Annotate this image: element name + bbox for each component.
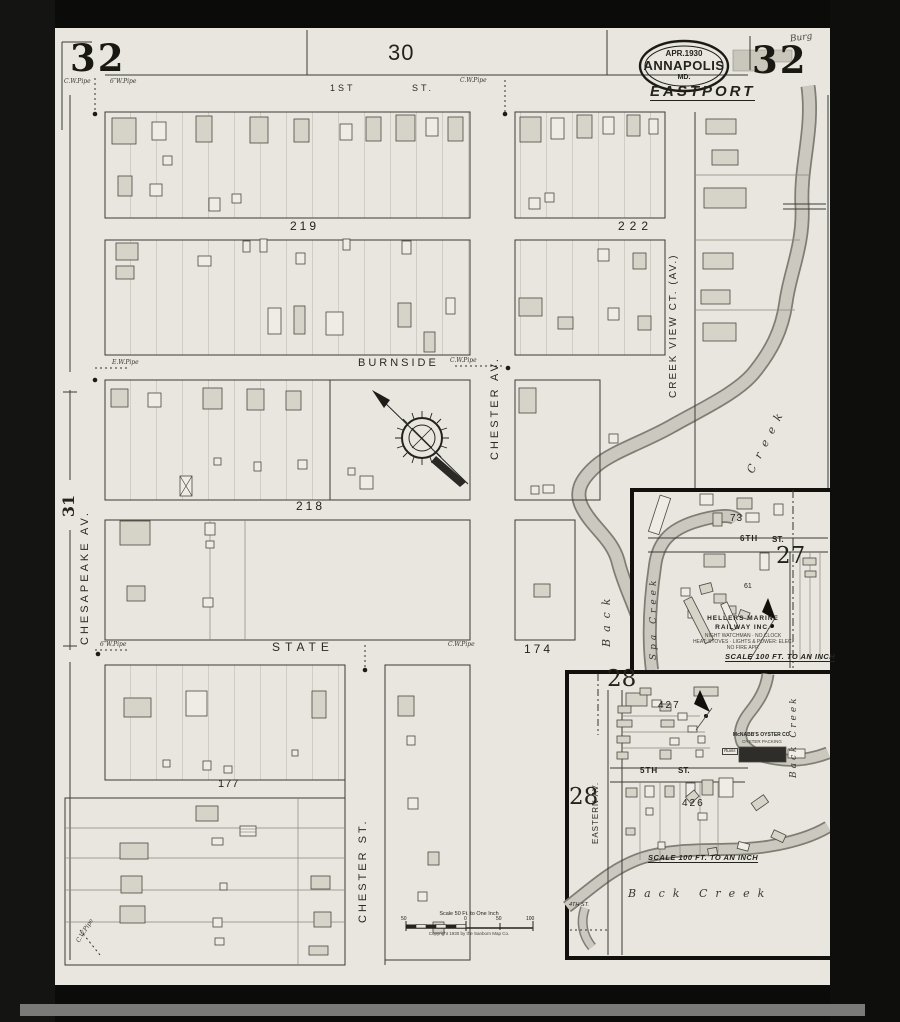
business-name-line1: McNABB'S OYSTER CO. — [733, 733, 791, 738]
street-label-burnside: BURNSIDE — [358, 358, 439, 369]
inset-27-scale-note: SCALE 100 FT. TO AN INCH — [725, 653, 835, 662]
district-label: EASTPORT — [650, 84, 755, 101]
business-name-line2: OYSTER PACKING — [742, 740, 782, 745]
pipe-note: C.W.Pipe — [460, 78, 487, 84]
block-number-427: 427 — [658, 701, 681, 711]
street-label-6th: 6TH — [740, 535, 758, 543]
scale-tick: 50 — [496, 917, 502, 922]
pipe-note: C.W.Pipe — [448, 642, 475, 648]
street-label-creek-view-ct: CREEK VIEW CT. (AV.) — [669, 180, 679, 398]
water-label-back-creek-bottom: Back Creek — [628, 888, 772, 899]
block-number-426: 426 — [682, 799, 705, 809]
block-number-219: 219 — [290, 220, 319, 232]
pipe-note: 6″W.Pipe — [100, 642, 126, 648]
inset-28-number-top: 28 — [607, 668, 636, 691]
block-number-218: 218 — [296, 500, 325, 512]
ruins-label: Ruins — [722, 748, 738, 755]
water-label-spa-creek: Spa Creek — [650, 552, 659, 660]
block-number-177: 177 — [218, 779, 239, 790]
street-label-state: STATE — [272, 641, 334, 653]
street-label-1st-suffix: ST. — [412, 84, 434, 93]
street-label-5th-suffix: ST. — [678, 767, 690, 775]
scale-bar-title: Scale 50 Ft. to One Inch — [439, 912, 498, 918]
pipe-note: C.W.Pipe — [64, 79, 91, 85]
adjacent-sheet-top: 30 — [388, 42, 414, 64]
inset-28-scale-note: SCALE 100 FT. TO AN INCH — [648, 854, 758, 863]
inset-27-number: 27 — [776, 545, 805, 568]
stamp-city: ANNAPOLIS — [643, 59, 724, 72]
pipe-note: E.W.Pipe — [112, 360, 139, 366]
sheet-number-left: 32 — [70, 40, 126, 77]
scanned-map-page: 32 32 30 31 Burg APR.1930 ANNAPOLIS MD. … — [0, 0, 900, 1022]
street-label-chesapeake-av: CHESAPEAKE AV. — [80, 440, 91, 645]
adjacent-sheet-left: 31 — [61, 495, 77, 517]
street-label-chester-av: CHESTER AV. — [490, 312, 501, 460]
map-canvas — [0, 0, 900, 1022]
compass-rose — [372, 390, 468, 487]
block-number-61: 61 — [744, 583, 752, 590]
scale-bar-copyright: Copyright 1930 by the Sanborn Map Co. — [429, 932, 510, 937]
business-fine-print: NO FIRE APP. — [727, 646, 759, 651]
street-label-1st: 1ST — [330, 84, 356, 93]
business-name-line2: RAILWAY INC. — [715, 625, 771, 632]
pipe-note: 6″W.Pipe — [110, 79, 136, 85]
pipe-note: C.W.Pipe — [450, 358, 477, 364]
street-label-chester-st: CHESTER ST. — [358, 745, 369, 923]
scale-tick: 50 — [401, 917, 407, 922]
stamp-date: APR.1930 — [666, 50, 703, 58]
block-number-174: 174 — [524, 643, 553, 655]
sheet-number-right: 32 — [752, 42, 808, 79]
water-label-back: Back — [601, 552, 612, 647]
street-label-6th-suffix: ST. — [772, 536, 784, 544]
street-label-4th: 4TH ST. — [569, 903, 589, 909]
scale-tick: 0 — [464, 917, 467, 922]
block-number-73: 73 — [730, 514, 743, 524]
block-number-222: 222 — [618, 220, 653, 232]
street-label-eastern-av: EASTERN AV. — [592, 744, 600, 844]
business-name-line1: HELLERS MARINE — [707, 616, 779, 623]
water-label-back-creek-side: Back Creek — [790, 682, 799, 778]
scale-tick: 100 — [526, 917, 534, 922]
street-label-5th: 5TH — [640, 767, 658, 775]
stamp-state: MD. — [678, 74, 691, 81]
